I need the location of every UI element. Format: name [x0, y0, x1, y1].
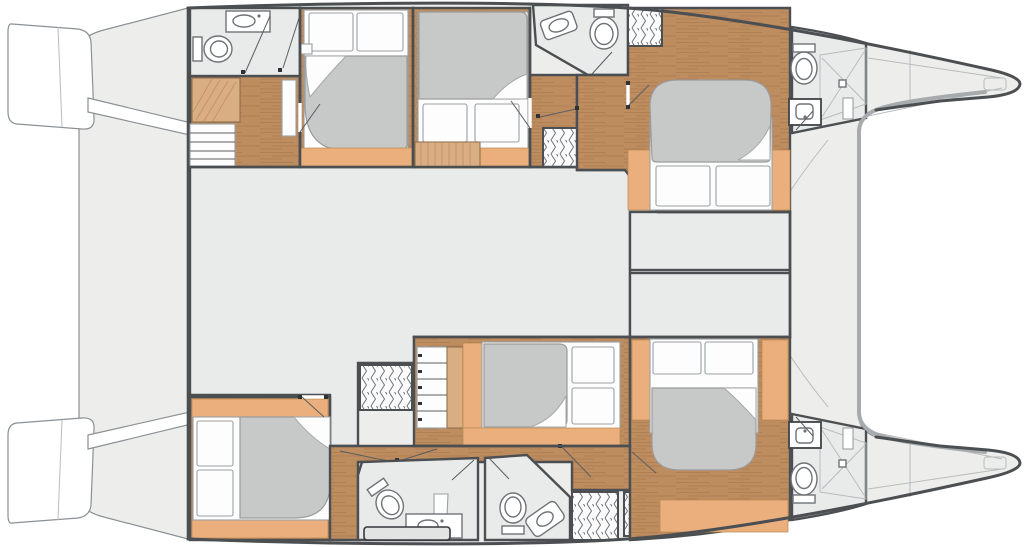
cabin-1-nightstand	[301, 44, 312, 54]
floor-plan-canvas	[0, 0, 1024, 547]
forward-locker-2	[630, 273, 790, 337]
bathroom-starboard-1	[358, 458, 478, 540]
bed-1-pillow-a	[309, 13, 353, 51]
fwd-stbd-nightstand-r	[762, 340, 788, 420]
fwd-port-nightstand-l	[628, 150, 652, 210]
drawers-port	[190, 124, 235, 166]
bed-6-pillow-a	[653, 342, 701, 374]
fwd-stbd-nightstand-l	[632, 340, 652, 420]
hanging-locker-mid-port	[543, 128, 577, 167]
bed-5-pillow-b	[572, 388, 614, 424]
dressing-shelf	[282, 80, 296, 136]
mid-stbd-wardrobe	[463, 343, 482, 428]
bed-4-pillow-b	[197, 470, 233, 516]
sink-aft-port	[226, 11, 270, 32]
platform-step-top	[8, 24, 94, 129]
sink-bow-starboard	[789, 422, 821, 448]
bed-4-pillow-a	[197, 421, 233, 466]
cabin-1-bench	[300, 148, 414, 166]
toilet-bow-starboard	[791, 463, 817, 503]
bed-2-pillow-b	[475, 104, 519, 142]
aft-cabin-starboard	[190, 397, 330, 540]
bath-bench-stbd	[364, 527, 450, 540]
bed-3-pillow-b	[716, 166, 770, 206]
toilet-bow-port	[791, 44, 817, 84]
shower-grate-stbd	[843, 428, 853, 449]
bed-2-pillow-a	[423, 104, 467, 142]
aft-stbd-locker-bottom	[192, 519, 328, 538]
sink-bow-port	[789, 99, 821, 125]
bed-3-pillow-a	[656, 166, 710, 206]
toilet-stbd-2	[500, 493, 526, 534]
shower-grate-port	[843, 98, 853, 119]
hanging-locker-stbd-1	[572, 492, 618, 540]
forward-cabin-starboard	[630, 337, 790, 540]
toilet-aft-port	[193, 36, 232, 62]
bed-1-pillow-b	[357, 13, 403, 51]
catamaran-floor-plan	[0, 0, 1024, 547]
bed-6-pillow-b	[705, 342, 753, 374]
toilet-mid-port	[590, 9, 618, 49]
forward-cabin-port	[628, 80, 790, 210]
stairs-stbd-tread	[447, 347, 463, 428]
forward-locker-1	[630, 212, 790, 270]
mid-cabin-starboard	[414, 337, 630, 446]
bridgedeck-front-edge	[859, 92, 985, 452]
mid-stbd-bench	[463, 428, 620, 445]
hanging-locker-saloon	[360, 365, 412, 410]
guest-cabin-1	[300, 8, 414, 167]
hanging-locker-fwd-port	[628, 8, 662, 46]
bed-5-pillow-a	[572, 347, 614, 383]
platform-step-bottom	[8, 418, 94, 523]
